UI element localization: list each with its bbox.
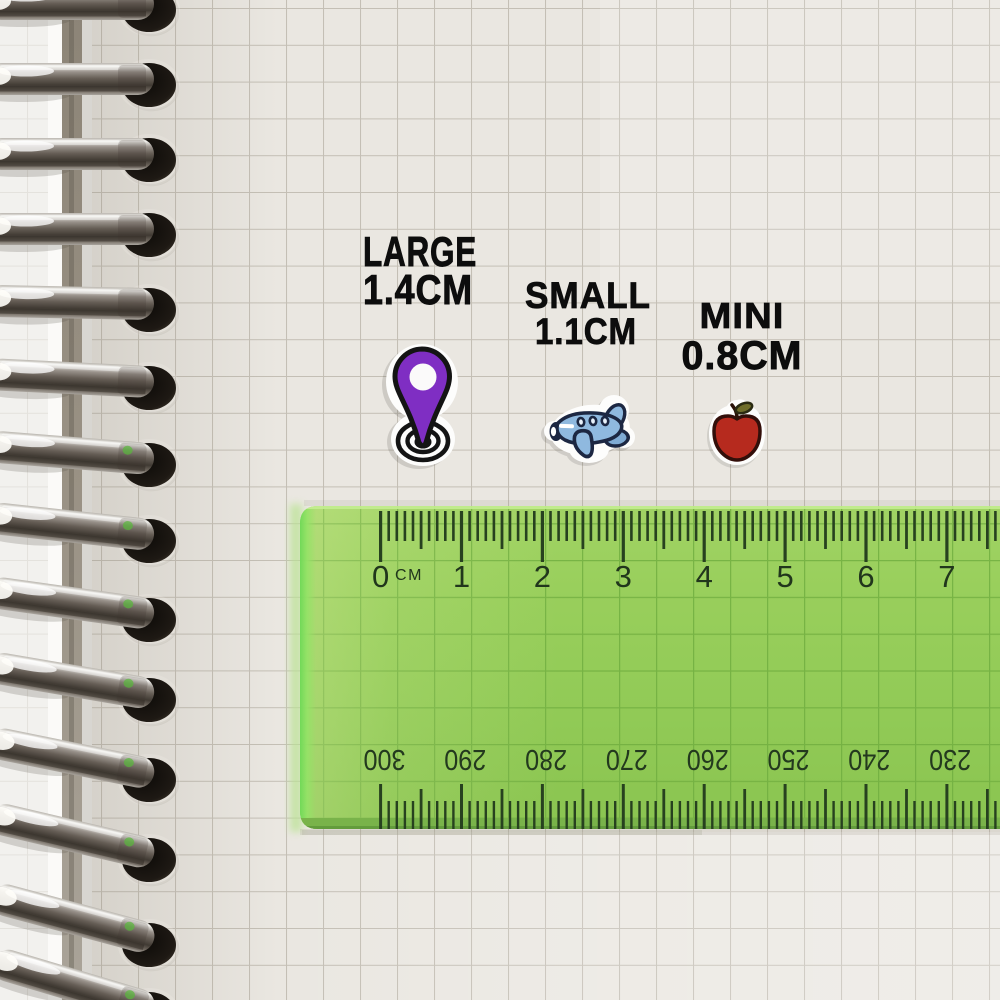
svg-text:0: 0 [372, 559, 389, 594]
svg-text:5: 5 [776, 559, 793, 594]
svg-text:4: 4 [696, 559, 713, 594]
svg-text:1.4CM: 1.4CM [363, 266, 473, 313]
svg-text:6: 6 [857, 559, 874, 594]
svg-text:2: 2 [534, 559, 551, 594]
svg-text:1.1CM: 1.1CM [535, 311, 637, 352]
svg-text:280: 280 [525, 743, 567, 775]
svg-text:240: 240 [848, 743, 890, 775]
svg-text:7: 7 [938, 559, 955, 594]
svg-text:290: 290 [444, 743, 486, 775]
svg-text:1: 1 [453, 559, 470, 594]
svg-text:250: 250 [768, 743, 810, 775]
svg-text:260: 260 [687, 743, 729, 775]
svg-text:CM: CM [395, 567, 423, 584]
svg-text:3: 3 [615, 559, 632, 594]
svg-text:MINI: MINI [700, 295, 785, 336]
svg-text:300: 300 [364, 743, 406, 775]
svg-text:230: 230 [929, 743, 971, 775]
svg-text:0.8CM: 0.8CM [682, 334, 803, 378]
svg-text:270: 270 [606, 743, 648, 775]
svg-text:SMALL: SMALL [525, 275, 651, 316]
